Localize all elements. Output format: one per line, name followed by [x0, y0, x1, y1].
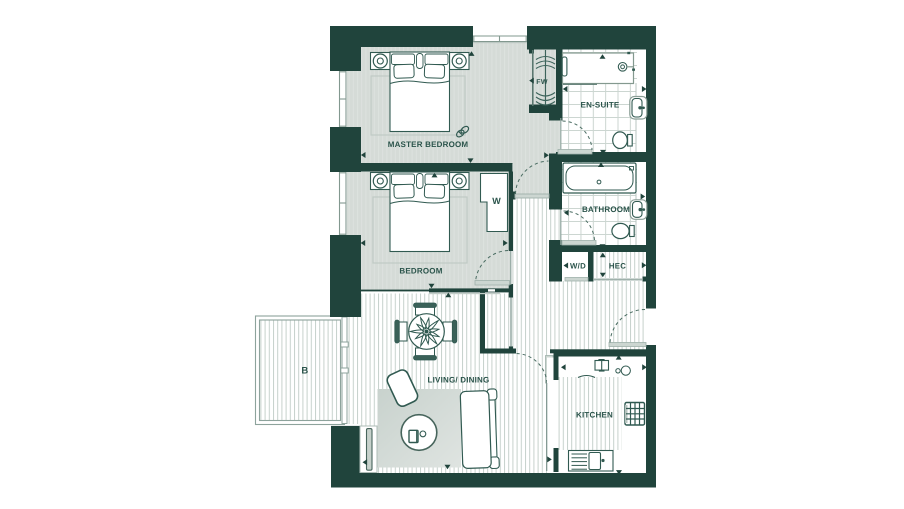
- svg-text:BATHROOM: BATHROOM: [582, 205, 630, 214]
- svg-text:EN-SUITE: EN-SUITE: [581, 101, 620, 110]
- svg-text:MASTER BEDROOM: MASTER BEDROOM: [388, 140, 469, 149]
- svg-text:LIVING/ DINING: LIVING/ DINING: [428, 376, 490, 385]
- svg-text:FW: FW: [536, 79, 548, 86]
- svg-text:W: W: [492, 196, 501, 206]
- svg-text:BEDROOM: BEDROOM: [399, 267, 442, 276]
- svg-text:HEC: HEC: [609, 262, 626, 271]
- svg-text:KITCHEN: KITCHEN: [576, 411, 613, 420]
- svg-text:W/D: W/D: [570, 262, 586, 271]
- svg-text:B: B: [301, 366, 308, 377]
